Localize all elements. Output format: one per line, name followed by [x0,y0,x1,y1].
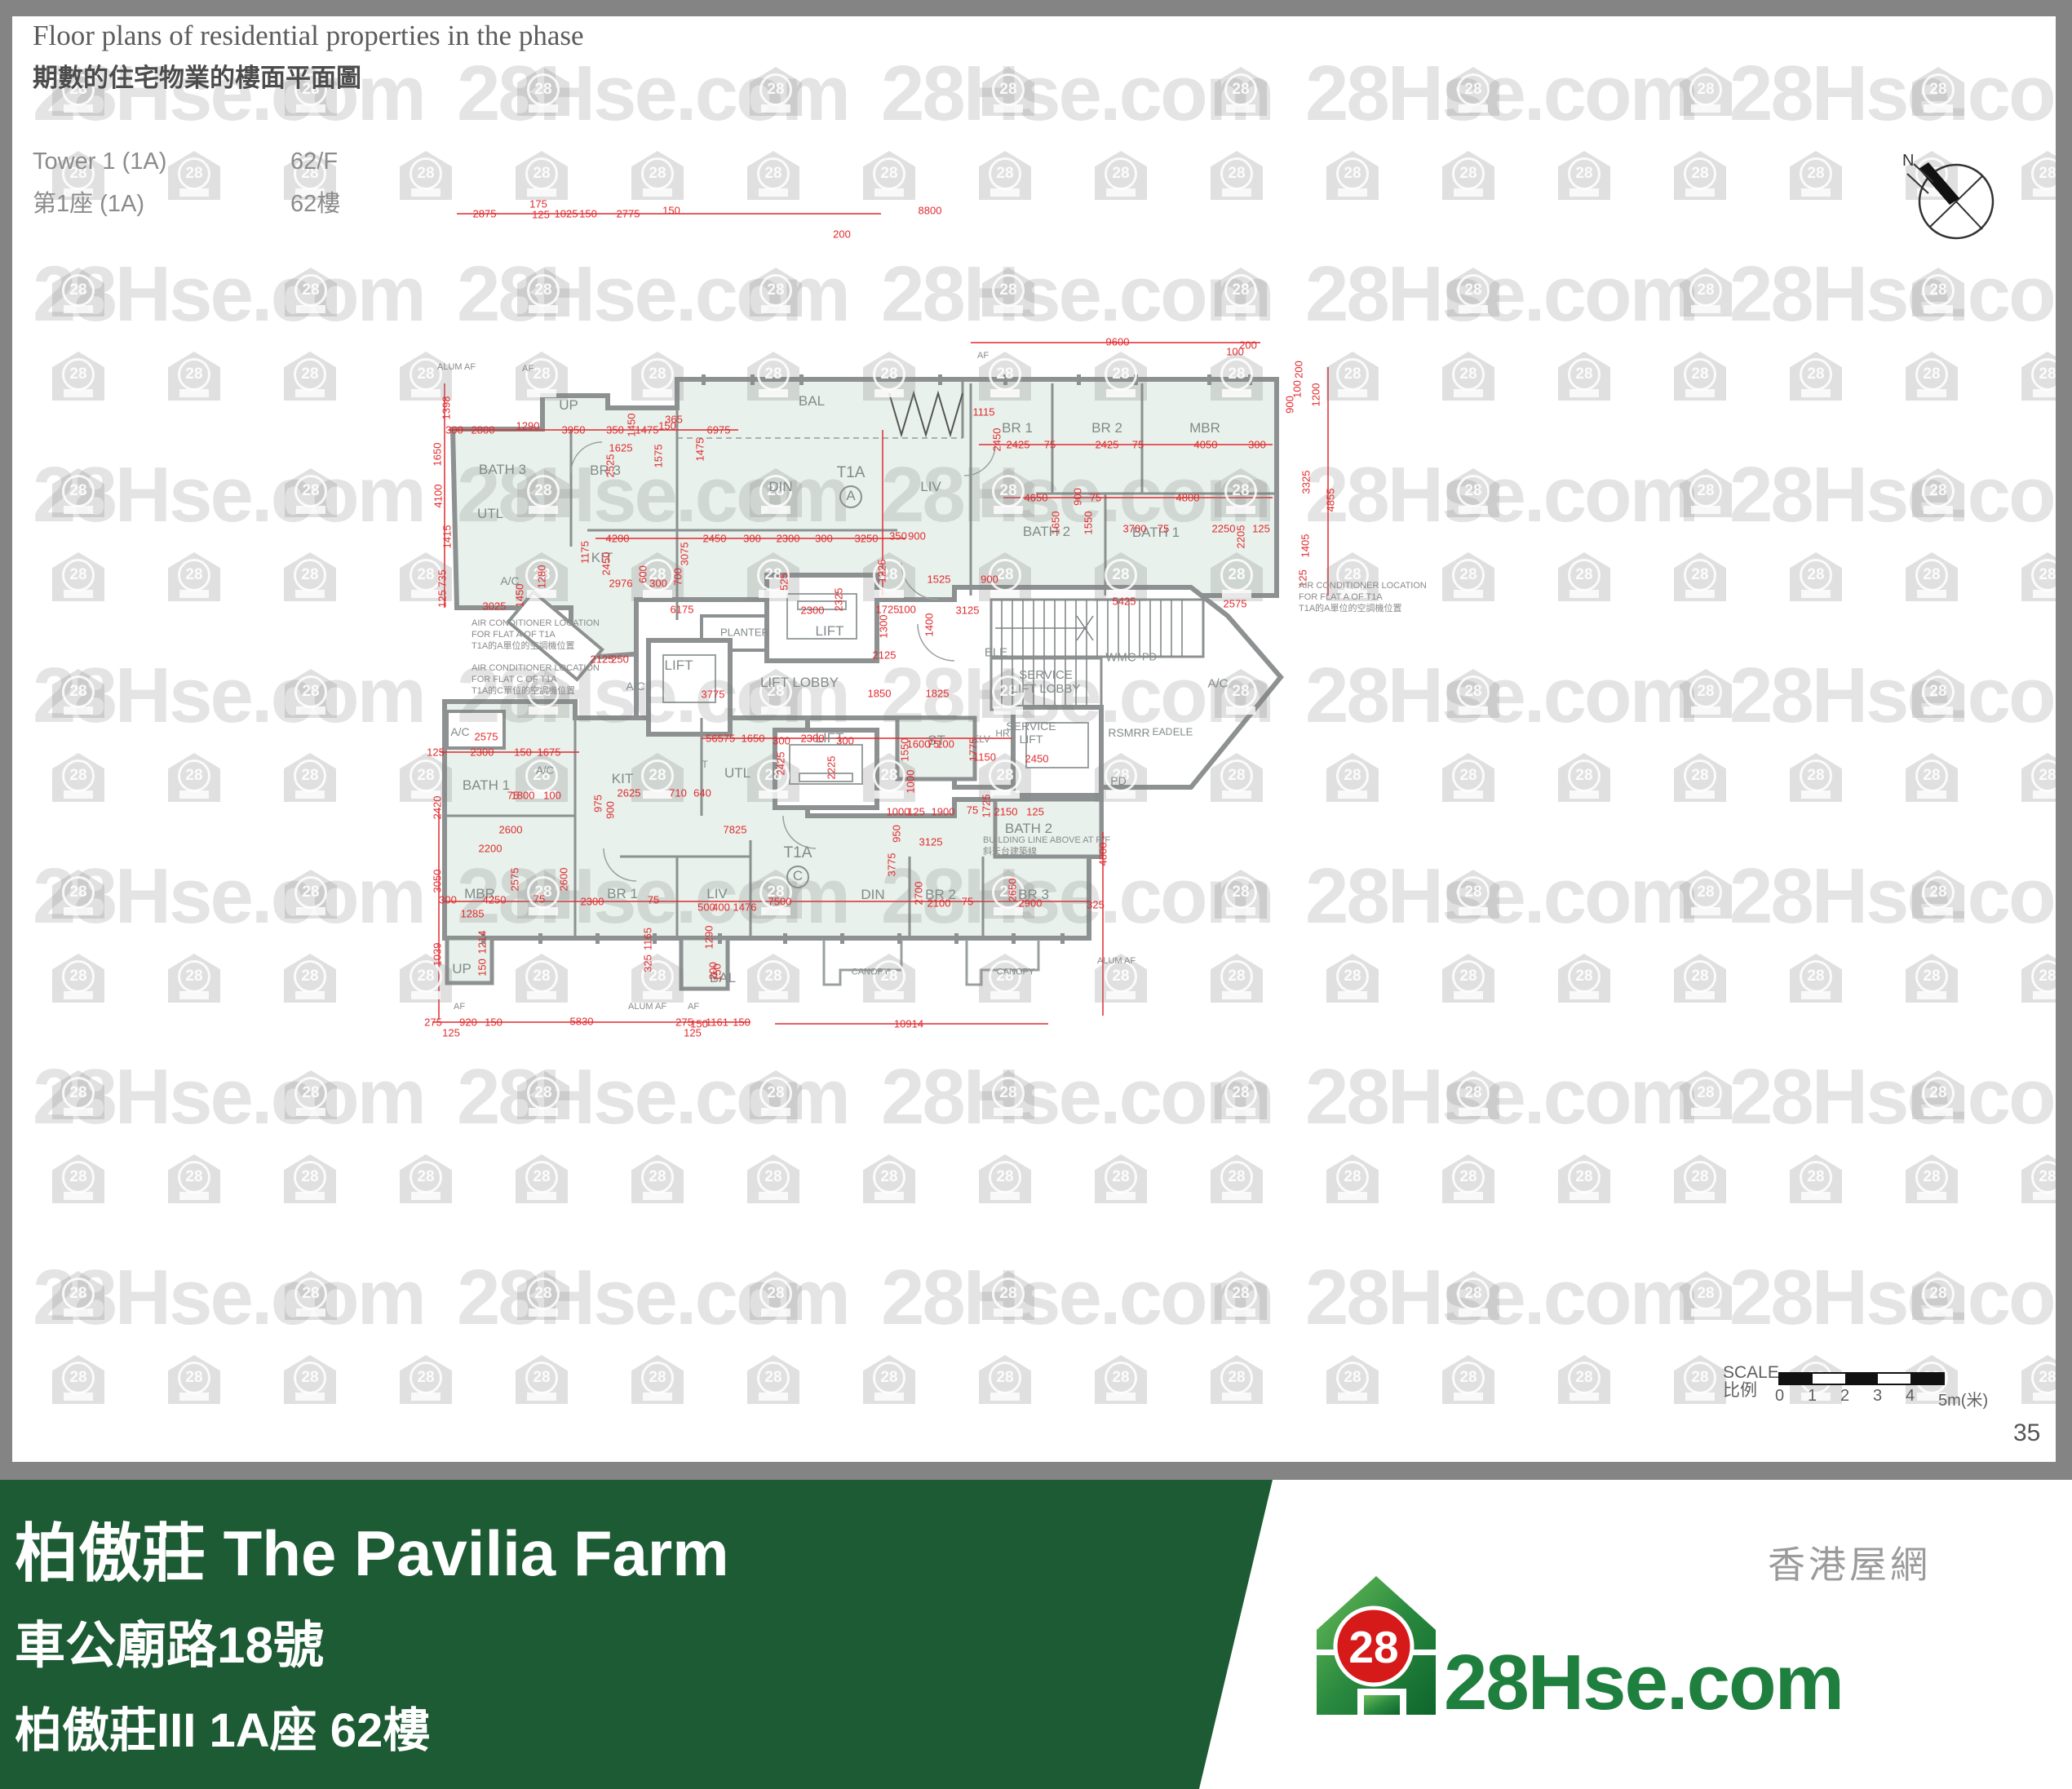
watermark-text: 28Hse.com [1729,651,2072,741]
estate-address: 車公廟路18號 [15,1604,324,1677]
watermark-house-icon: 28 [1680,67,1732,116]
watermark-text: 28Hse.com [1729,1454,2072,1462]
watermark-house-icon: 28 [1211,151,1263,200]
watermark-house-icon: 28 [168,753,220,802]
watermark-house-icon: 28 [1326,151,1379,200]
watermark-text: 28Hse.com [1305,1253,1697,1343]
watermark-house-icon: 28 [1912,67,1964,116]
watermark-house-icon: 28 [631,151,684,200]
watermark-house-icon: 28 [863,1154,915,1203]
watermark-house-icon: 28 [517,1070,569,1119]
watermark-text: 28Hse.com [1305,852,1697,941]
watermark-text: 28Hse.com [33,250,424,339]
watermark-text: 28Hse.com [33,852,424,941]
watermark-house-icon: 28 [284,552,336,601]
watermark-house-icon: 28 [284,954,336,1003]
watermark-house-icon: 28 [168,352,220,401]
watermark-house-icon: 28 [1211,1355,1263,1404]
watermark-house-icon: 28 [285,1271,337,1320]
store-room [897,718,975,779]
watermark-house-icon: 28 [52,1271,104,1320]
watermark-house-icon: 28 [1674,1355,1726,1404]
scale-tick: 3 [1873,1387,1882,1406]
watermark-house-icon: 28 [284,352,336,401]
watermark-house-icon: 28 [400,1355,452,1404]
watermark-house-icon: 28 [285,870,337,919]
watermark-house-icon: 28 [1442,352,1494,401]
watermark-text: 28Hse.com [1729,1253,2072,1343]
floor-label-zh: 62樓 [290,184,340,219]
watermark-house-icon: 28 [863,1355,915,1404]
page-border-left [0,0,12,1480]
floor-label-en: 62/F [290,148,338,175]
watermark-text: 28Hse.com [33,651,424,741]
watermark-house-icon: 28 [52,1070,104,1119]
watermark-house-icon: 28 [400,151,452,200]
watermark-house-icon: 28 [1442,1154,1494,1203]
watermark-house-icon: 28 [1326,352,1379,401]
watermark-house-icon: 28 [1326,1355,1379,1404]
watermark-house-icon: 28 [1326,954,1379,1003]
watermark-text: 28Hse.com [1305,1052,1697,1142]
watermark-house-icon: 28 [52,1154,104,1203]
watermark-house-icon: 28 [1558,352,1610,401]
watermark-house-icon: 28 [750,1070,802,1119]
watermark-house-icon: 28 [1095,1355,1147,1404]
watermark-house-icon: 28 [1680,1070,1732,1119]
page-border-bottom [0,1462,2072,1480]
watermark-text: 28Hse.com [33,1052,424,1142]
scale-tick: 2 [1840,1387,1849,1406]
watermark-house-icon: 28 [517,67,569,116]
flat-c-bath2 [995,799,1101,857]
watermark-house-icon: 28 [1447,67,1499,116]
estate-title: 柏傲莊 The Pavilia Farm [15,1503,729,1594]
watermark-text: 28Hse.com [457,1052,848,1142]
watermark-house-icon: 28 [1211,1154,1263,1203]
watermark-house-icon: 28 [168,954,220,1003]
watermark-house-icon: 28 [1790,552,1842,601]
watermark-house-icon: 28 [1326,753,1379,802]
watermark-house-icon: 28 [1447,1070,1499,1119]
watermark-house-icon: 28 [982,67,1034,116]
watermark-house-icon: 28 [52,1355,104,1404]
watermark-house-icon: 28 [1215,67,1267,116]
watermark-house-icon: 28 [52,954,104,1003]
watermark-house-icon: 28 [1912,268,1964,317]
tower-label-en: Tower 1 (1A) [33,148,166,175]
watermark-house-icon: 28 [1906,954,1958,1003]
page-number: 35 [2013,1419,2040,1447]
watermark-house-icon: 28 [1447,870,1499,919]
page-title-en: Floor plans of residential properties in… [33,20,584,52]
watermark-text: 28Hse.com [1729,852,2072,941]
watermark-house-icon: 28 [1442,753,1494,802]
watermark-house-icon: 28 [1326,552,1379,601]
logo-wordmark: 28Hse.com [1444,1638,1843,1728]
canopy-2 [967,940,1038,985]
watermark-house-icon: 28 [982,1070,1034,1119]
watermark-text: 28Hse.com [1305,49,1697,139]
watermark-house-icon: 28 [747,151,799,200]
scale-tick: 4 [1906,1387,1915,1406]
watermark-house-icon: 28 [284,1154,336,1203]
watermark-house-icon: 28 [1447,669,1499,718]
watermark-text: 28Hse.com [1729,49,2072,139]
compass-north-label: N [1902,152,1914,170]
compass-icon: N [1901,151,2007,253]
flat-c-up [447,938,492,983]
watermark-house-icon: 28 [1558,1154,1610,1203]
scale-bar-track [1778,1372,1945,1385]
estate-unit: 柏傲莊III 1A座 62樓 [15,1692,430,1760]
watermark-house-icon: 28 [52,268,104,317]
watermark-house-icon: 28 [516,1154,568,1203]
watermark-text: 28Hse.com [881,49,1273,139]
watermark-house-icon: 28 [1680,1271,1732,1320]
watermark-text: 28Hse.com [1305,450,1697,540]
watermark-text: 28Hse.com [1305,651,1697,741]
watermark-house-icon: 28 [1442,151,1494,200]
floor-plan-drawing [432,204,1330,1052]
watermark-house-icon: 28 [1680,669,1732,718]
watermark-house-icon: 28 [1912,1271,1964,1320]
28hse-house-icon: 28 [1315,1574,1437,1717]
watermark-house-icon: 28 [1558,753,1610,802]
watermark-text: 28Hse.com [881,1454,1273,1462]
watermark-house-icon: 28 [516,151,568,200]
watermark-house-icon: 28 [168,1355,220,1404]
watermark-house-icon: 28 [52,352,104,401]
watermark-text: 28Hse.com [1305,1454,1697,1462]
watermark-house-icon: 28 [979,1154,1031,1203]
stair-flight-2 [991,658,1101,710]
watermark-house-icon: 28 [285,268,337,317]
ac-box-left [447,711,504,748]
watermark-house-icon: 28 [285,1070,337,1119]
scale-label-zh: 比例 [1723,1382,1779,1400]
watermark-house-icon: 28 [1447,1271,1499,1320]
watermark-house-icon: 28 [1447,268,1499,317]
watermark-text: 28Hse.com [1729,450,2072,540]
watermark-house-icon: 28 [1680,468,1732,517]
watermark-house-icon: 28 [1326,1154,1379,1203]
watermark-text: 28Hse.com [1729,250,2072,339]
watermark-house-icon: 28 [1674,352,1726,401]
watermark-house-icon: 28 [1447,468,1499,517]
watermark-house-icon: 28 [1674,151,1726,200]
watermark-house-icon: 28 [285,669,337,718]
logo-tagline: 香港屋網 [1768,1535,1931,1589]
watermark-house-icon: 28 [1790,753,1842,802]
watermark-house-icon: 28 [982,1271,1034,1320]
watermark-text: 28Hse.com [33,1454,424,1462]
watermark-house-icon: 28 [1906,552,1958,601]
watermark-house-icon: 28 [1912,468,1964,517]
scale-bar: SCALE 比例 012345m(米) [1723,1364,1779,1400]
watermark-house-icon: 28 [631,1154,684,1203]
watermark-house-icon: 28 [52,552,104,601]
watermark-text: 28Hse.com [33,1253,424,1343]
watermark-text: 28Hse.com [881,1052,1273,1142]
watermark-text: 28Hse.com [881,1253,1273,1343]
watermark-house-icon: 28 [1912,870,1964,919]
watermark-house-icon: 28 [1558,954,1610,1003]
flat-c-balcony [681,938,728,989]
watermark-text: 28Hse.com [457,49,848,139]
watermark-text: 28Hse.com [1729,1052,2072,1142]
watermark-house-icon: 28 [1790,151,1842,200]
watermark-text: 28Hse.com [457,1253,848,1343]
watermark-house-icon: 28 [631,1355,684,1404]
watermark-house-icon: 28 [52,669,104,718]
watermark-house-icon: 28 [1790,954,1842,1003]
watermark-house-icon: 28 [52,753,104,802]
watermark-house-icon: 28 [1906,1154,1958,1203]
canopy-1 [824,940,901,985]
watermark-house-icon: 28 [168,552,220,601]
watermark-house-icon: 28 [1215,1271,1267,1320]
watermark-house-icon: 28 [1674,1154,1726,1203]
watermark-text: 28Hse.com [33,450,424,540]
watermark-house-icon: 28 [1215,1070,1267,1119]
watermark-house-icon: 28 [168,151,220,200]
watermark-text: 28Hse.com [1305,250,1697,339]
watermark-house-icon: 28 [979,1355,1031,1404]
watermark-house-icon: 28 [517,1271,569,1320]
watermark-house-icon: 28 [1906,753,1958,802]
watermark-house-icon: 28 [284,753,336,802]
watermark-house-icon: 28 [979,151,1031,200]
watermark-house-icon: 28 [750,1271,802,1320]
watermark-house-icon: 28 [1674,954,1726,1003]
scale-end-label: 5m(米) [1938,1387,1988,1410]
watermark-house-icon: 28 [1095,1154,1147,1203]
tower-label-zh: 第1座 (1A) [33,184,144,219]
watermark-house-icon: 28 [1442,552,1494,601]
watermark-house-icon: 28 [1095,151,1147,200]
watermark-house-icon: 28 [1558,151,1610,200]
watermark-house-icon: 28 [1790,1154,1842,1203]
watermark-house-icon: 28 [1912,669,1964,718]
watermark-house-icon: 28 [1906,352,1958,401]
watermark-house-icon: 28 [52,468,104,517]
watermark-house-icon: 28 [168,1154,220,1203]
watermark-house-icon: 28 [285,468,337,517]
watermark-house-icon: 28 [1558,1355,1610,1404]
lift-shaft-upper [767,575,877,661]
watermark-house-icon: 28 [1674,552,1726,601]
watermark-house-icon: 28 [1558,552,1610,601]
watermark-house-icon: 28 [1680,268,1732,317]
scale-tick: 1 [1808,1387,1817,1406]
watermark-text: 28Hse.com [457,1454,848,1462]
scale-label-en: SCALE [1723,1364,1779,1382]
watermark-house-icon: 28 [1442,954,1494,1003]
page-border-right [2056,0,2072,1480]
watermark-house-icon: 28 [52,870,104,919]
watermark-house-icon: 28 [863,151,915,200]
watermark-house-icon: 28 [1674,753,1726,802]
28hse-logo: 28 香港屋網 28Hse.com [1315,1574,2049,1770]
page-border-top [0,0,2072,16]
page-title-zh: 期數的住宅物業的樓面平面圖 [33,57,361,94]
watermark-house-icon: 28 [747,1154,799,1203]
watermark-house-icon: 28 [1790,352,1842,401]
logo-badge-28: 28 [1348,1622,1398,1672]
watermark-house-icon: 28 [1680,870,1732,919]
watermark-house-icon: 28 [516,1355,568,1404]
watermark-house-icon: 28 [1442,1355,1494,1404]
scale-tick: 0 [1775,1387,1784,1406]
watermark-house-icon: 28 [284,1355,336,1404]
watermark-house-icon: 28 [750,67,802,116]
watermark-house-icon: 28 [1912,1070,1964,1119]
watermark-house-icon: 28 [747,1355,799,1404]
watermark-house-icon: 28 [400,1154,452,1203]
